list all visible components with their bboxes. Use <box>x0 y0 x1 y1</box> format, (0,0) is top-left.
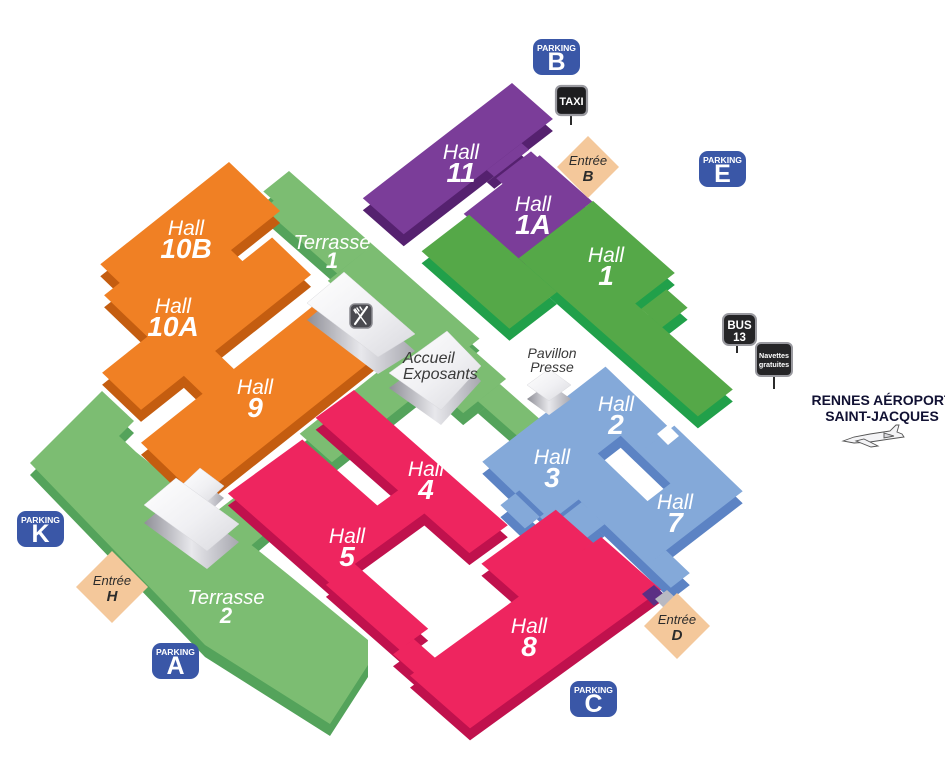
svg-text:8: 8 <box>521 631 537 662</box>
svg-text:Entrée: Entrée <box>569 153 607 168</box>
svg-text:Navettes: Navettes <box>759 351 789 360</box>
svg-text:B: B <box>583 168 594 185</box>
svg-text:10A: 10A <box>147 311 198 342</box>
svg-text:Entrée: Entrée <box>658 612 696 627</box>
svg-text:gratuites: gratuites <box>759 360 789 369</box>
svg-text:2: 2 <box>219 603 233 628</box>
svg-text:5: 5 <box>339 541 355 572</box>
svg-text:RENNES AÉROPORT: RENNES AÉROPORT <box>811 392 945 408</box>
svg-text:SAINT-JACQUES: SAINT-JACQUES <box>825 408 939 424</box>
svg-text:2: 2 <box>607 409 624 440</box>
svg-text:Exposants: Exposants <box>403 366 478 383</box>
svg-text:13: 13 <box>733 332 746 344</box>
svg-text:E: E <box>714 160 731 188</box>
svg-text:7: 7 <box>667 507 684 538</box>
svg-text:11: 11 <box>446 157 475 188</box>
svg-text:Accueil: Accueil <box>402 350 455 367</box>
svg-text:3: 3 <box>544 462 560 493</box>
svg-text:Presse: Presse <box>530 359 574 375</box>
svg-text:TAXI: TAXI <box>559 96 583 108</box>
svg-text:B: B <box>547 48 565 76</box>
svg-text:D: D <box>672 627 683 644</box>
svg-text:1: 1 <box>598 260 614 291</box>
svg-text:K: K <box>31 520 49 548</box>
svg-text:1A: 1A <box>515 209 551 240</box>
svg-text:1: 1 <box>326 248 338 273</box>
svg-text:4: 4 <box>417 474 434 505</box>
svg-text:10B: 10B <box>160 233 211 264</box>
svg-text:A: A <box>166 652 184 680</box>
svg-text:9: 9 <box>247 392 263 423</box>
svg-text:Entrée: Entrée <box>93 573 131 588</box>
svg-text:C: C <box>584 690 602 718</box>
svg-text:H: H <box>107 588 119 605</box>
svg-text:BUS: BUS <box>727 320 752 332</box>
